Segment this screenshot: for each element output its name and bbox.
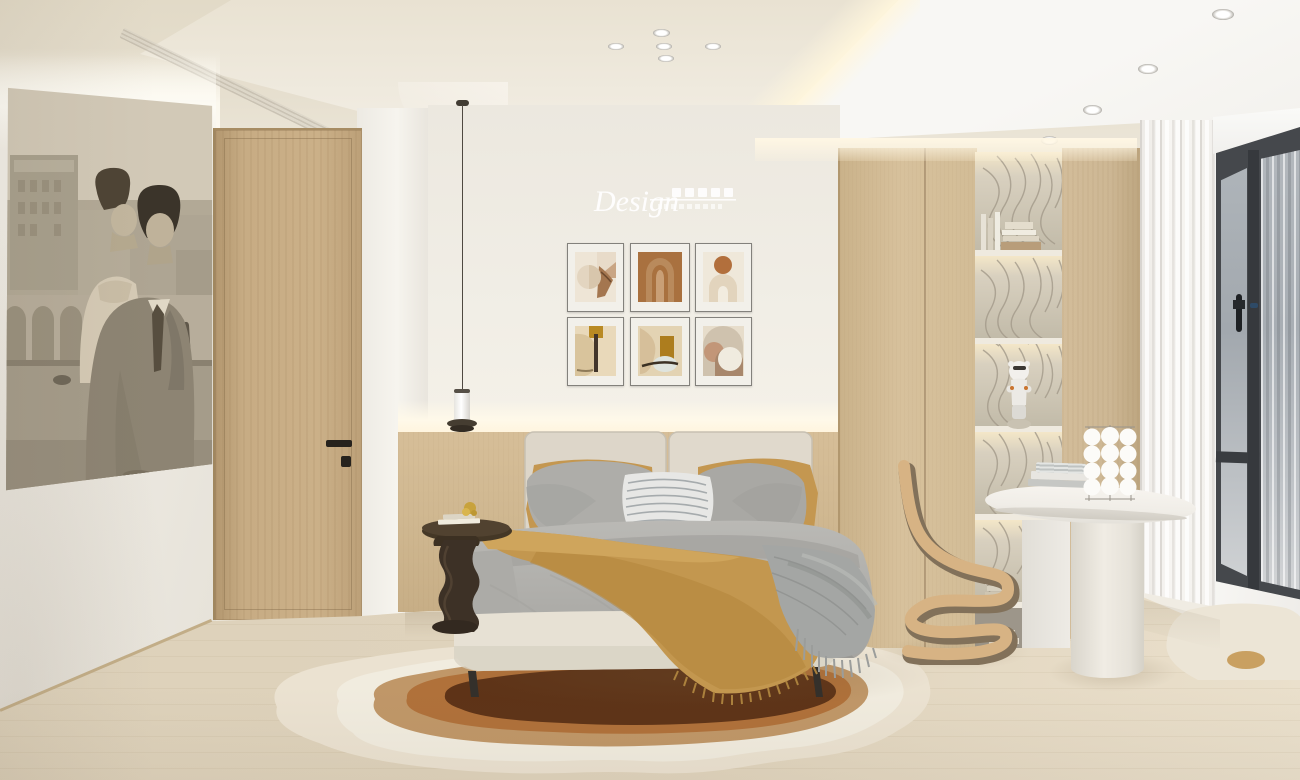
svg-text:Design: Design	[593, 185, 679, 218]
